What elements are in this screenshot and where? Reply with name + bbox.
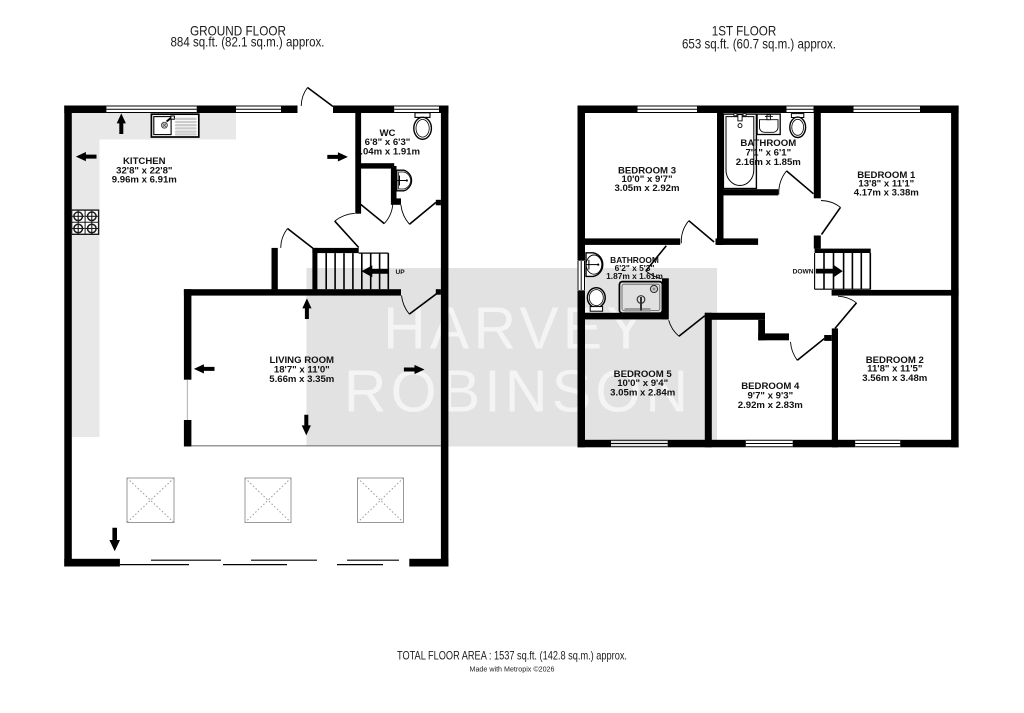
- svg-text:5.66m x 3.35m: 5.66m x 3.35m: [269, 374, 334, 385]
- svg-text:2.16m x 1.85m: 2.16m x 1.85m: [736, 157, 801, 168]
- svg-text:HARVEY: HARVEY: [383, 296, 650, 362]
- svg-text:884 sq.ft. (82.1 sq.m.) approx: 884 sq.ft. (82.1 sq.m.) approx.: [171, 35, 325, 50]
- svg-text:3.56m x 3.48m: 3.56m x 3.48m: [862, 373, 927, 384]
- svg-text:3.05m x 2.84m: 3.05m x 2.84m: [610, 387, 675, 398]
- svg-text:3.05m x 2.92m: 3.05m x 2.92m: [614, 183, 679, 194]
- svg-text:UP: UP: [396, 269, 406, 276]
- svg-text:TOTAL FLOOR AREA : 1537 sq.ft.: TOTAL FLOOR AREA : 1537 sq.ft. (142.8 sq…: [397, 650, 627, 663]
- svg-text:DOWN: DOWN: [793, 268, 814, 275]
- svg-text:653 sq.ft. (60.7 sq.m.) approx: 653 sq.ft. (60.7 sq.m.) approx.: [682, 37, 836, 52]
- svg-text:4.17m x 3.38m: 4.17m x 3.38m: [854, 187, 919, 198]
- svg-text:2.04m x 1.91m: 2.04m x 1.91m: [355, 146, 420, 157]
- svg-text:1.87m x 1.61m: 1.87m x 1.61m: [606, 271, 663, 281]
- svg-text:Made with Metropix ©2026: Made with Metropix ©2026: [470, 664, 555, 673]
- svg-text:9.96m x 6.91m: 9.96m x 6.91m: [112, 175, 177, 186]
- svg-text:2.92m x 2.83m: 2.92m x 2.83m: [738, 400, 803, 411]
